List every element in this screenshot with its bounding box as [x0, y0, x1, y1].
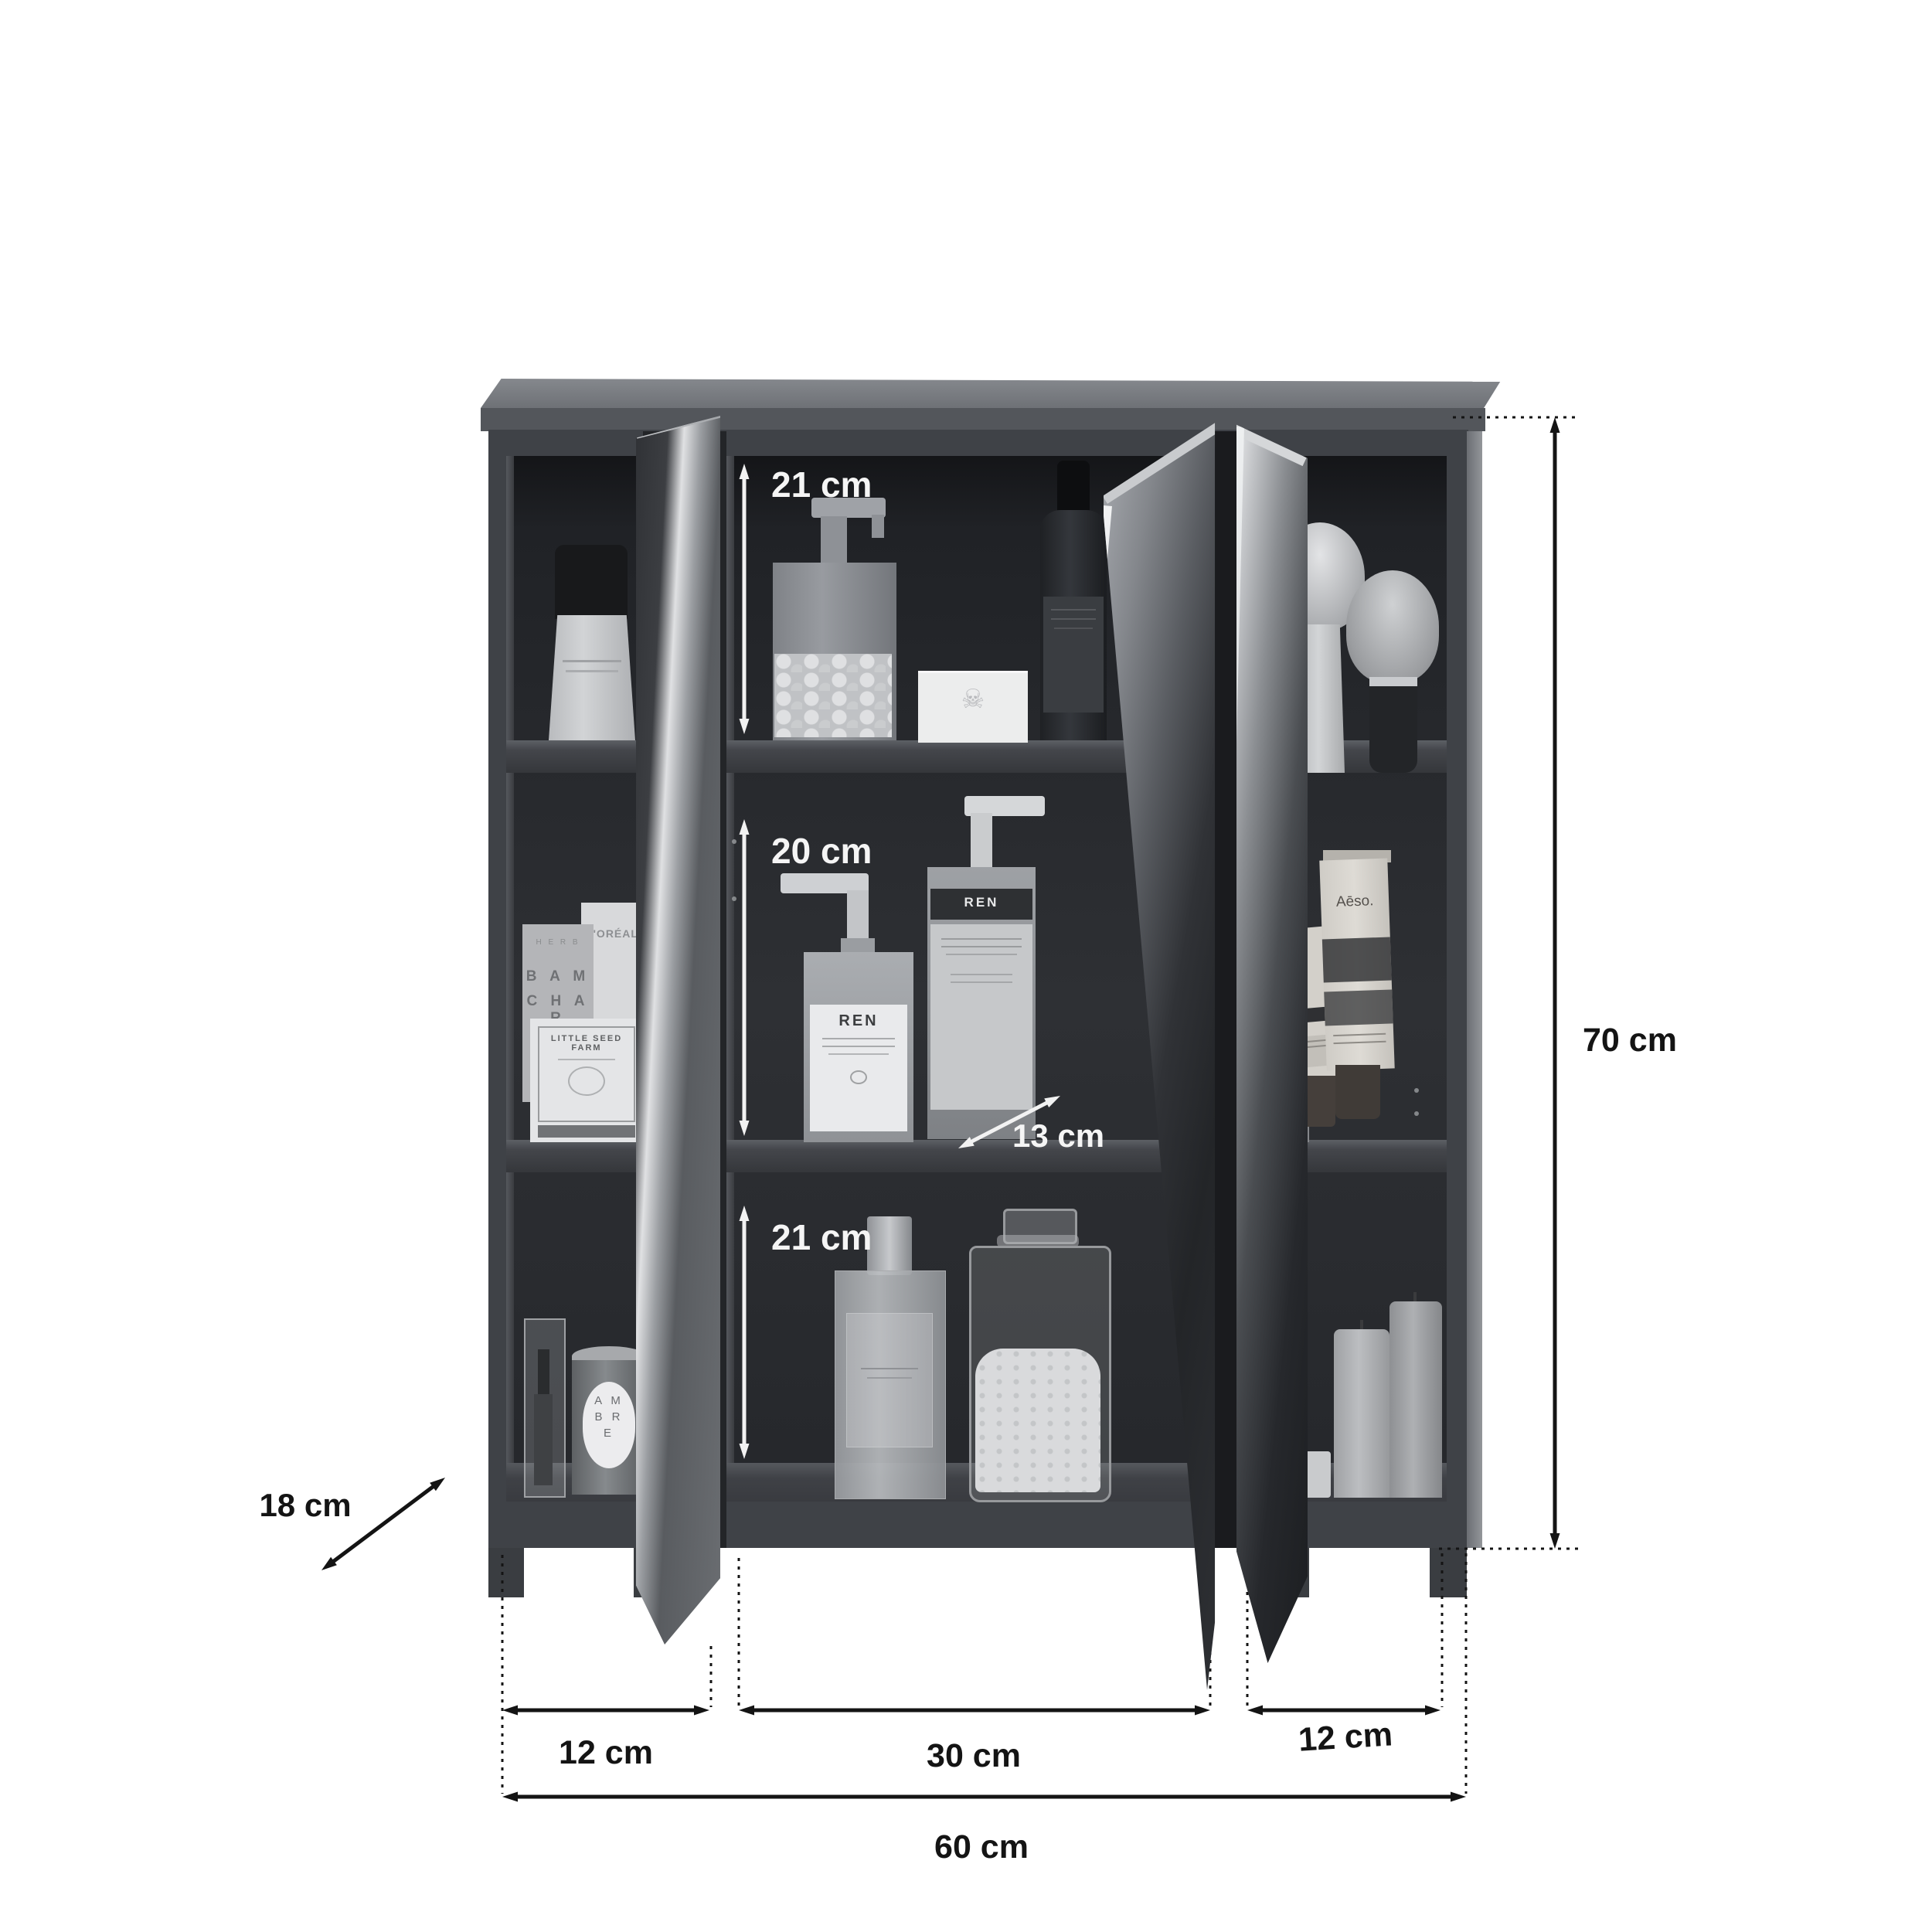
- dim-label-middle-width: 30 cm: [858, 1737, 1090, 1775]
- dim-label-cabinet-depth: 18 cm: [232, 1487, 379, 1524]
- left-mirror-door[interactable]: [636, 416, 720, 1645]
- dimension-lines: [0, 0, 1932, 1932]
- diagram-canvas: L'ORÉAL H E R B B A M C H A R LITTLE SEE…: [0, 0, 1932, 1932]
- dim-label-cabinet-height: 70 cm: [1583, 1022, 1677, 1060]
- dim-label-left-width: 12 cm: [490, 1734, 722, 1772]
- door-hinge-gap: [1215, 431, 1238, 1548]
- dim-label-total-width: 60 cm: [881, 1828, 1082, 1866]
- right-mirror-door[interactable]: [1236, 423, 1308, 1663]
